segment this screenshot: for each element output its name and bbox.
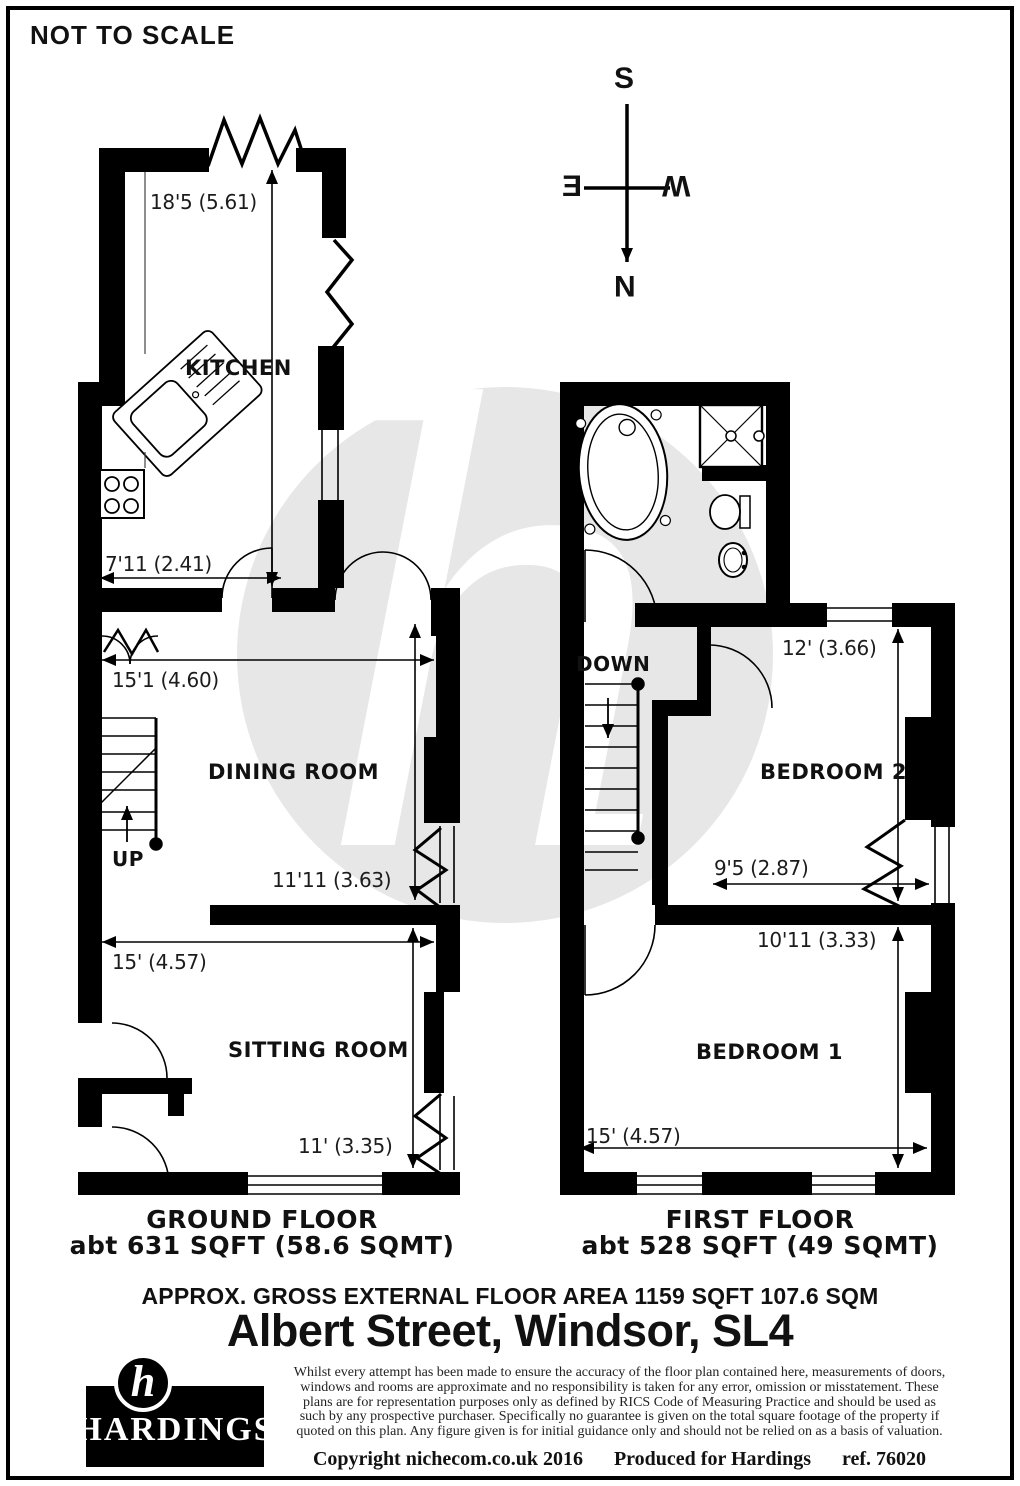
floorplan-page: { "page": { "scale_note": "NOT TO SCALE"…	[0, 0, 1020, 1486]
first-floor-area: abt 528 SQFT (49 SQMT)	[540, 1231, 980, 1260]
hardings-logo-icon: h	[114, 1354, 172, 1412]
bedroom1-width-dim: 15' (4.57)	[586, 1124, 680, 1148]
scale-note: NOT TO SCALE	[30, 20, 235, 51]
bedroom2-label: BEDROOM 2	[760, 760, 907, 784]
stairs-down-label: DOWN	[576, 652, 650, 676]
bedroom2-width-dim: 9'5 (2.87)	[714, 856, 808, 880]
sitting-length-dim: 11' (3.35)	[298, 1134, 392, 1158]
bedroom1-label: BEDROOM 1	[696, 1040, 843, 1064]
stairs-up-label: UP	[112, 847, 144, 871]
hardings-logo-banner: HARDINGS	[86, 1386, 264, 1467]
logo-initial: h	[131, 1357, 155, 1406]
stairs-up	[98, 718, 162, 850]
compass-icon	[584, 104, 670, 262]
disclaimer-text: Whilst every attempt has been made to en…	[292, 1366, 947, 1440]
property-address: Albert Street, Windsor, SL4	[0, 1305, 1020, 1357]
bedroom1-length-dim: 10'11 (3.33)	[757, 928, 876, 952]
compass-south-label: S	[614, 62, 634, 96]
first-floor-plan	[560, 382, 955, 1195]
sitting-width-dim: 15' (4.57)	[112, 950, 206, 974]
compass-north-label: N	[614, 268, 636, 302]
toilet-icon	[710, 495, 750, 529]
basin-icon	[719, 543, 747, 577]
reference-number: ref. 76020	[842, 1448, 926, 1470]
shower-icon	[700, 405, 764, 467]
kitchen-sink	[110, 328, 264, 479]
hob-icon	[100, 470, 144, 518]
sitting-room-label: SITTING ROOM	[228, 1038, 409, 1062]
kitchen-label: KITCHEN	[185, 356, 292, 380]
produced-text: Produced for Hardings	[614, 1448, 811, 1470]
copyright-text: Copyright nichecom.co.uk 2016	[313, 1448, 583, 1470]
logo-name: HARDINGS	[75, 1405, 274, 1449]
dining-length-dim: 11'11 (3.63)	[272, 868, 391, 892]
floor-plan-canvas: h	[0, 0, 1020, 1486]
dining-room-label: DINING ROOM	[208, 760, 379, 784]
kitchen-length-dim: 18'5 (5.61)	[150, 190, 257, 214]
ground-floor-title: GROUND FLOOR	[42, 1205, 482, 1234]
compass-east-label: E	[562, 170, 582, 204]
bedroom2-length-dim: 12' (3.66)	[782, 636, 876, 660]
copyright-line: Copyright nichecom.co.uk 2016 Produced f…	[292, 1448, 947, 1471]
kitchen-width-dim: 7'11 (2.41)	[105, 552, 212, 576]
compass-west-label: W	[662, 168, 690, 202]
ground-floor-area: abt 631 SQFT (58.6 SQMT)	[42, 1231, 482, 1260]
first-floor-title: FIRST FLOOR	[540, 1205, 980, 1234]
dining-width-dim: 15'1 (4.60)	[112, 668, 219, 692]
